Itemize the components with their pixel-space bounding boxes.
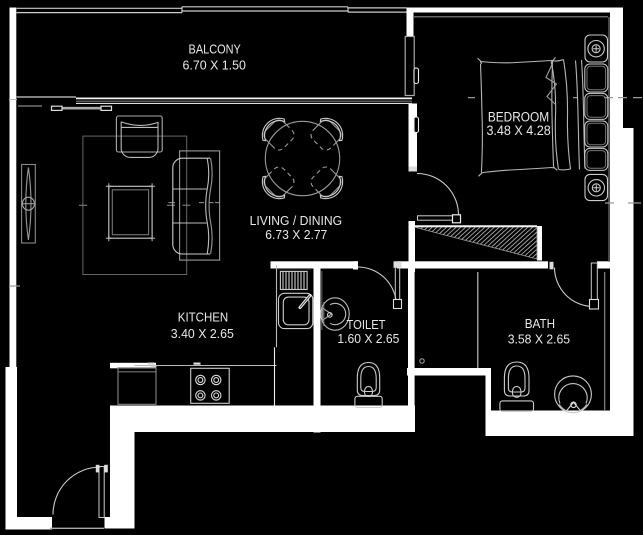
- svg-text:BATH: BATH: [525, 317, 555, 331]
- svg-text:BEDROOM: BEDROOM: [488, 109, 549, 124]
- svg-text:3.48 X 4.28: 3.48 X 4.28: [486, 123, 550, 138]
- svg-text:LIVING / DINING: LIVING / DINING: [250, 214, 343, 228]
- svg-text:6.70 X 1.50: 6.70 X 1.50: [183, 59, 246, 73]
- svg-text:KITCHEN: KITCHEN: [178, 311, 228, 325]
- svg-text:TOILET: TOILET: [347, 318, 386, 332]
- svg-text:1.60 X 2.65: 1.60 X 2.65: [337, 332, 399, 346]
- svg-text:3.58 X 2.65: 3.58 X 2.65: [508, 333, 570, 347]
- svg-text:BALCONY: BALCONY: [189, 42, 242, 56]
- svg-text:3.40 X 2.65: 3.40 X 2.65: [171, 327, 234, 341]
- svg-text:6.73 X 2.77: 6.73 X 2.77: [265, 228, 327, 242]
